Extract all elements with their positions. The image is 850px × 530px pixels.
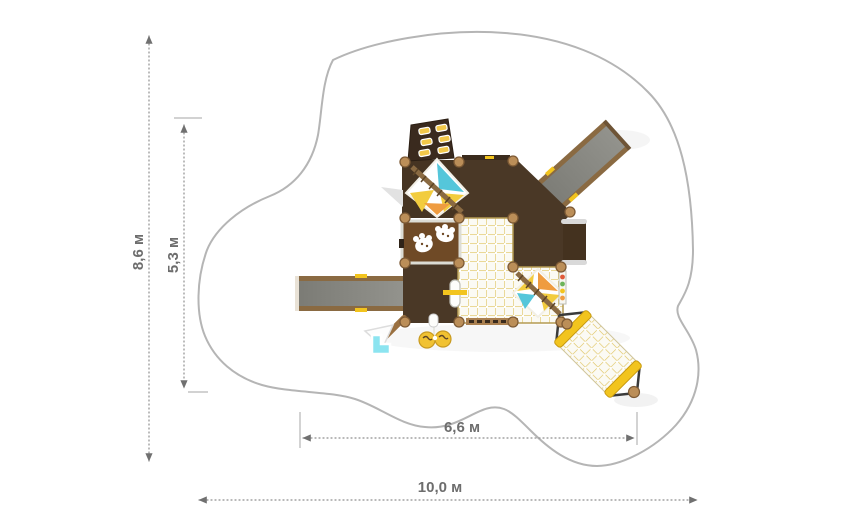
- label-equipment-height: 5,3 м: [165, 237, 182, 273]
- dimension-safety-width: 10,0 м: [199, 479, 697, 500]
- abacus-beads: [559, 271, 566, 304]
- dimension-equipment-height: 5,3 м: [165, 118, 208, 392]
- game-panel-paws: [399, 221, 460, 263]
- label-safety-width: 10,0 м: [418, 479, 462, 496]
- side-shade: [381, 187, 403, 207]
- plan-drawing: 8,6 м 5,3 м 6,6 м 10,0 м: [0, 0, 850, 530]
- plan-canvas: 8,6 м 5,3 м 6,6 м 10,0 м: [0, 0, 850, 530]
- slide-clip: [355, 274, 367, 278]
- playground-structure: [295, 119, 653, 409]
- dimension-safety-height: 8,6 м: [130, 36, 149, 461]
- left-slide: [295, 274, 404, 312]
- label-safety-height: 8,6 м: [130, 234, 147, 270]
- balcony: [561, 219, 587, 265]
- slide-clip: [355, 308, 367, 312]
- label-equipment-width: 6,6 м: [444, 419, 480, 436]
- bridge-end-post: [629, 387, 640, 398]
- panel-hinge: [399, 239, 404, 248]
- climbing-wall: [408, 119, 454, 161]
- top-rail-clip: [485, 156, 494, 159]
